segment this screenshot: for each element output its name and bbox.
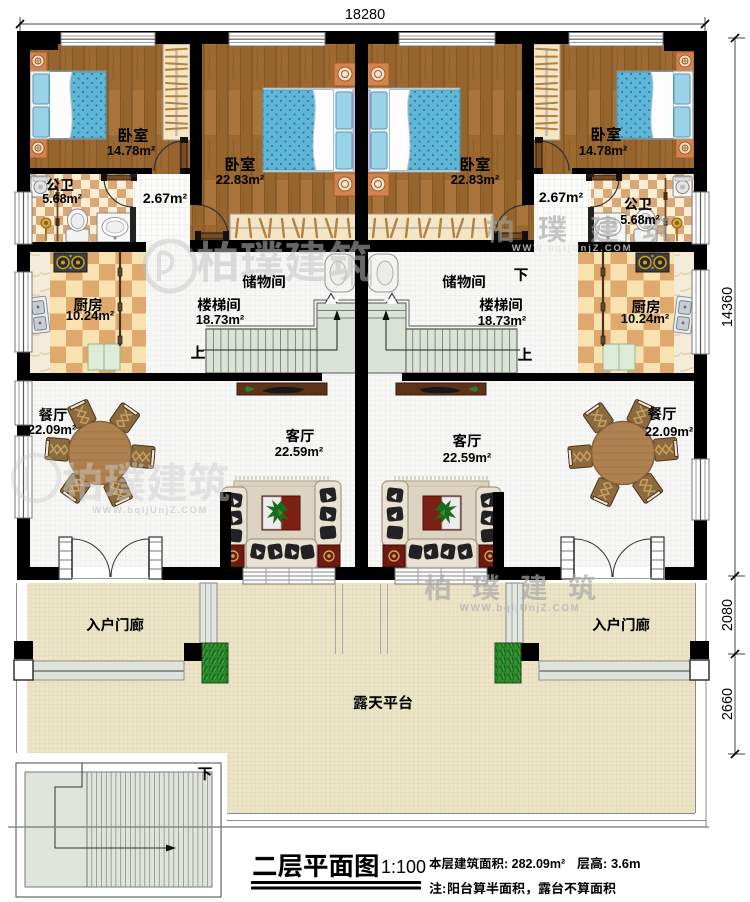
svg-text:5.68m²: 5.68m² bbox=[620, 213, 660, 227]
svg-text:WWW.bqijUnjZ.COM: WWW.bqijUnjZ.COM bbox=[92, 505, 208, 516]
svg-text:22.09m²: 22.09m² bbox=[645, 424, 694, 439]
svg-text:22.59m²: 22.59m² bbox=[443, 450, 492, 465]
svg-text::: : bbox=[442, 881, 446, 896]
svg-text:5.68m²: 5.68m² bbox=[42, 192, 82, 206]
svg-text:22.09m²: 22.09m² bbox=[28, 422, 77, 437]
svg-text:18.73m²: 18.73m² bbox=[478, 313, 527, 328]
svg-text:2.67m²: 2.67m² bbox=[143, 190, 188, 206]
svg-text:18.73m²: 18.73m² bbox=[196, 312, 245, 327]
svg-text:2660: 2660 bbox=[720, 688, 736, 720]
svg-text:18280: 18280 bbox=[345, 7, 385, 23]
svg-text:22.83m²: 22.83m² bbox=[451, 172, 500, 187]
svg-text:1:100: 1:100 bbox=[381, 857, 426, 877]
svg-text:WWW.bqijUnjZ.COM: WWW.bqijUnjZ.COM bbox=[512, 243, 633, 254]
svg-text:2080: 2080 bbox=[720, 599, 736, 631]
svg-text:2.67m²: 2.67m² bbox=[539, 189, 584, 205]
svg-text:10.24m²: 10.24m² bbox=[621, 311, 670, 326]
svg-text:14.78m²: 14.78m² bbox=[107, 143, 156, 158]
svg-text:10.24m²: 10.24m² bbox=[66, 308, 115, 323]
svg-text:14360: 14360 bbox=[720, 287, 736, 327]
svg-text:: 3.6m: : 3.6m bbox=[603, 856, 641, 871]
svg-text:: 282.09m²: : 282.09m² bbox=[504, 857, 565, 871]
svg-text:22.59m²: 22.59m² bbox=[275, 444, 324, 459]
svg-text:14.78m²: 14.78m² bbox=[579, 143, 628, 158]
svg-text:22.83m²: 22.83m² bbox=[216, 172, 265, 187]
svg-text:WWW.bqijUnjZ.COM: WWW.bqijUnjZ.COM bbox=[460, 603, 581, 614]
